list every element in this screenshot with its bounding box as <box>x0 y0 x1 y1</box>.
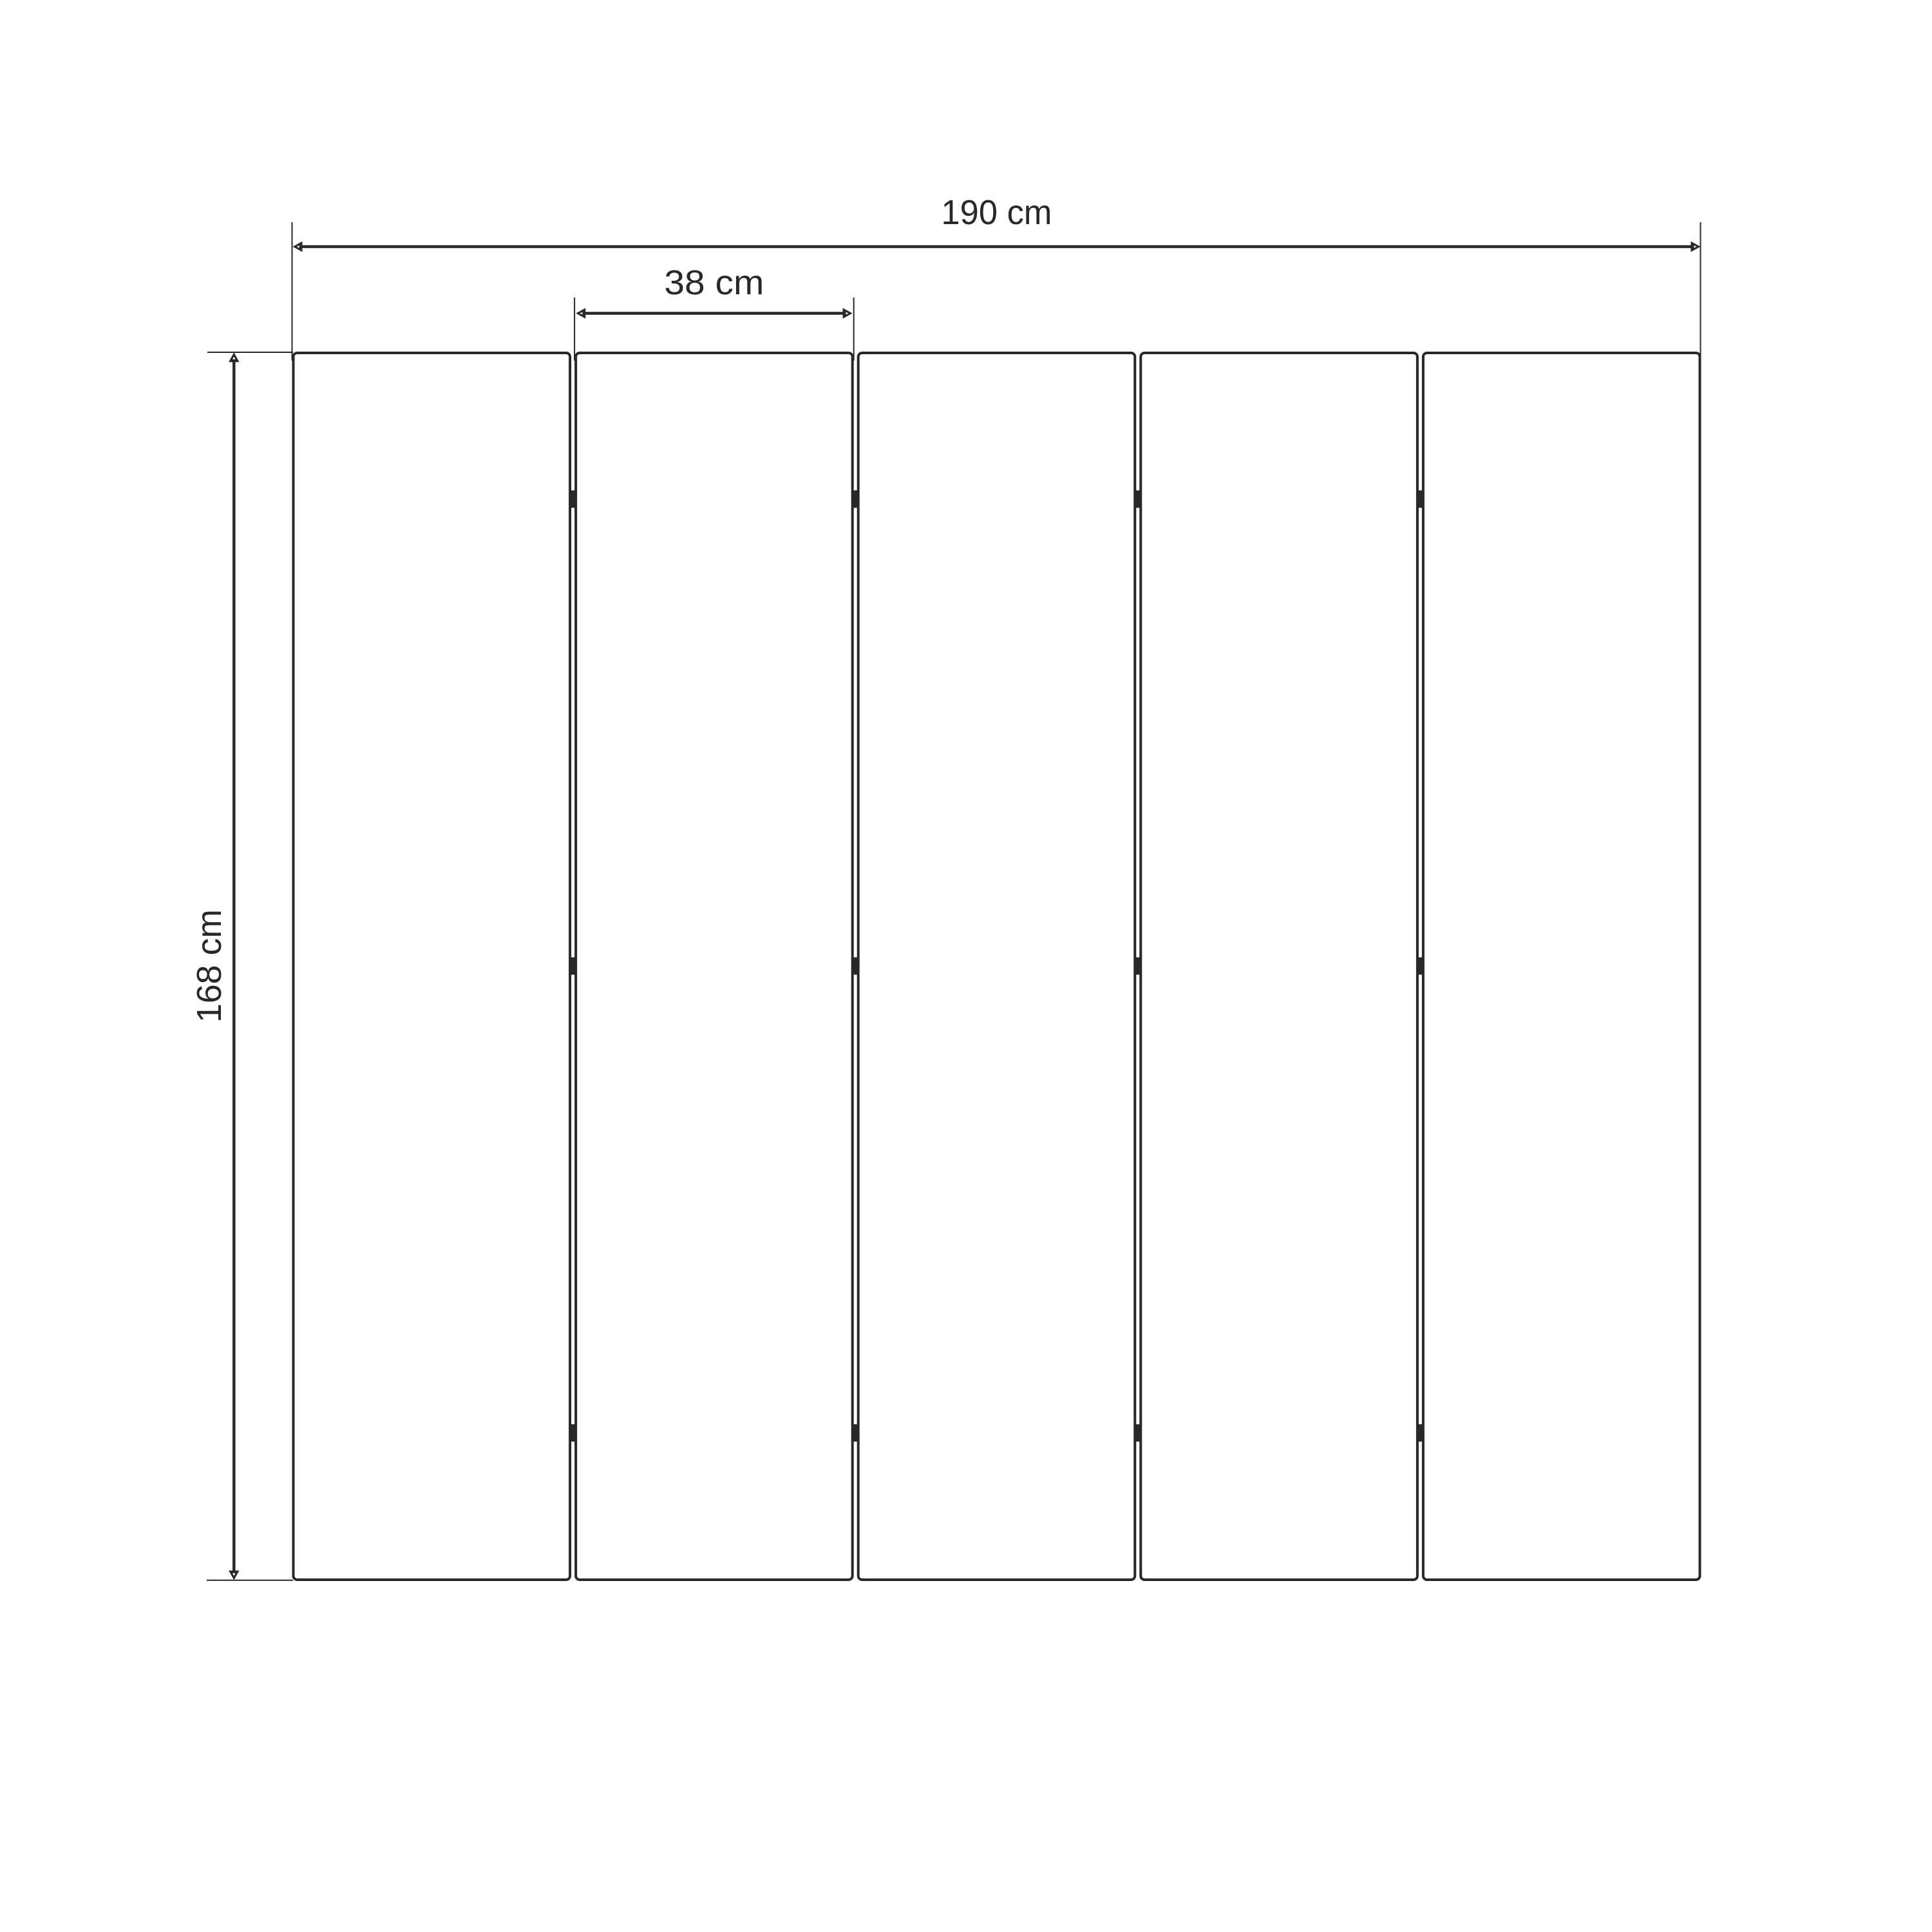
svg-text:38 cm: 38 cm <box>664 263 764 302</box>
svg-text:190 cm: 190 cm <box>942 193 1052 232</box>
svg-text:168 cm: 168 cm <box>190 909 229 1023</box>
